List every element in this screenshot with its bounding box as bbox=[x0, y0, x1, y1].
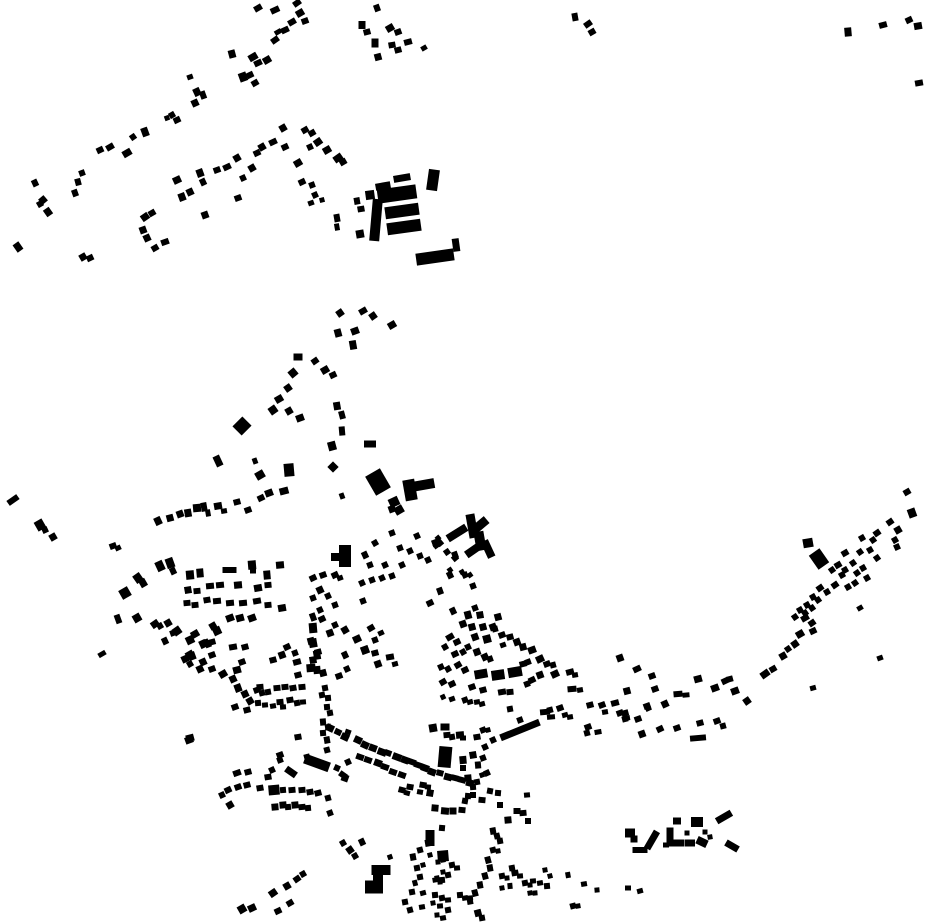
building-footprint bbox=[537, 880, 544, 886]
building-footprint bbox=[247, 163, 257, 173]
building-footprint bbox=[467, 895, 473, 901]
building-footprint bbox=[432, 877, 438, 883]
building-footprint bbox=[233, 498, 241, 506]
building-footprint bbox=[464, 774, 472, 782]
building-footprint bbox=[273, 685, 280, 692]
building-footprint bbox=[527, 890, 533, 896]
building-footprint bbox=[448, 680, 457, 688]
building-footprint bbox=[285, 899, 294, 908]
building-footprint bbox=[435, 859, 440, 864]
building-footprint bbox=[388, 572, 396, 580]
building-footprint bbox=[323, 736, 330, 744]
building-footprint bbox=[255, 700, 262, 707]
building-footprint bbox=[856, 604, 864, 611]
building-footprint bbox=[556, 704, 565, 712]
building-footprint bbox=[481, 872, 489, 880]
building-footprint bbox=[268, 785, 280, 796]
building-footprint bbox=[853, 569, 861, 577]
building-footprint bbox=[252, 457, 259, 464]
building-footprint bbox=[166, 514, 175, 523]
building-footprint bbox=[476, 611, 484, 619]
building-footprint bbox=[359, 597, 367, 605]
building-footprint bbox=[265, 689, 272, 696]
building-footprint bbox=[394, 28, 403, 36]
building-footprint bbox=[232, 153, 242, 163]
building-footprint bbox=[413, 532, 421, 540]
building-footprint bbox=[915, 79, 924, 86]
building-footprint bbox=[417, 874, 424, 881]
building-footprint bbox=[482, 634, 492, 644]
building-footprint bbox=[333, 214, 340, 223]
building-footprint bbox=[547, 873, 553, 879]
building-footprint bbox=[339, 839, 347, 847]
building-footprint bbox=[344, 758, 352, 766]
building-footprint bbox=[320, 365, 330, 375]
building-footprint bbox=[213, 166, 222, 174]
building-footprint bbox=[631, 836, 638, 843]
building-footprint bbox=[468, 683, 477, 691]
building-footprint bbox=[673, 691, 682, 698]
building-footprint bbox=[315, 585, 324, 594]
building-footprint bbox=[309, 574, 318, 582]
building-footprint bbox=[610, 699, 619, 707]
building-footprint bbox=[685, 831, 690, 836]
building-footprint bbox=[388, 768, 398, 776]
building-footprint bbox=[426, 789, 434, 797]
building-footprint bbox=[256, 784, 264, 791]
building-footprint bbox=[186, 74, 193, 81]
building-footprint bbox=[371, 539, 379, 547]
building-footprint bbox=[186, 570, 195, 580]
map-canvas bbox=[0, 0, 930, 924]
building-footprint bbox=[402, 899, 409, 906]
building-footprint bbox=[386, 653, 395, 660]
building-footprint bbox=[495, 848, 501, 854]
building-footprint bbox=[307, 200, 314, 207]
building-footprint bbox=[409, 889, 416, 896]
building-footprint bbox=[278, 123, 288, 133]
building-footprint bbox=[314, 789, 322, 797]
building-footprint bbox=[475, 761, 482, 768]
building-footprint bbox=[440, 915, 447, 921]
building-footprint bbox=[206, 583, 214, 590]
building-footprint bbox=[469, 582, 477, 590]
building-footprint bbox=[253, 584, 262, 592]
building-footprint bbox=[256, 684, 263, 691]
building-footprint bbox=[464, 610, 473, 620]
building-footprint bbox=[623, 687, 632, 696]
building-footprint bbox=[283, 643, 292, 651]
building-footprint bbox=[567, 714, 574, 720]
building-footprint bbox=[358, 838, 366, 847]
building-footprint bbox=[276, 699, 283, 706]
building-footprint bbox=[636, 888, 643, 894]
building-footprint bbox=[648, 672, 657, 680]
building-footprint bbox=[114, 614, 123, 625]
building-footprint bbox=[851, 579, 859, 587]
building-footprint bbox=[274, 907, 283, 915]
building-footprint bbox=[276, 561, 285, 569]
building-footprint bbox=[430, 900, 436, 906]
building-footprint bbox=[222, 163, 232, 172]
building-footprint bbox=[856, 548, 864, 556]
building-footprint bbox=[323, 746, 330, 753]
building-footprint bbox=[371, 649, 379, 657]
building-footprint bbox=[437, 903, 443, 909]
building-footprint bbox=[365, 190, 375, 200]
building-footprint bbox=[177, 192, 186, 202]
building-footprint bbox=[417, 789, 424, 795]
building-footprint bbox=[474, 668, 488, 679]
building-footprint bbox=[359, 21, 366, 29]
building-footprint bbox=[484, 856, 492, 864]
building-footprint bbox=[468, 623, 477, 632]
building-footprint bbox=[398, 561, 406, 569]
building-footprint bbox=[244, 768, 252, 776]
building-footprint bbox=[268, 138, 278, 147]
building-footprint bbox=[300, 699, 306, 705]
building-footprint bbox=[237, 904, 248, 915]
building-footprint bbox=[586, 701, 594, 709]
building-footprint bbox=[121, 148, 132, 159]
building-footprint bbox=[660, 699, 669, 708]
building-footprint bbox=[373, 4, 381, 13]
building-footprint bbox=[253, 3, 263, 12]
building-footprint bbox=[397, 771, 407, 779]
building-footprint bbox=[403, 790, 410, 796]
building-footprint bbox=[459, 756, 467, 765]
building-footprint bbox=[830, 581, 839, 590]
building-footprint bbox=[696, 719, 704, 727]
building-footprint bbox=[338, 410, 346, 419]
building-footprint bbox=[238, 658, 247, 666]
building-footprint bbox=[78, 169, 86, 177]
building-footprint bbox=[320, 730, 327, 737]
building-footprint bbox=[243, 781, 251, 789]
building-footprint bbox=[473, 648, 482, 657]
building-footprint bbox=[426, 599, 435, 607]
building-footprint bbox=[270, 703, 277, 709]
building-footprint bbox=[504, 816, 512, 824]
building-footprint bbox=[366, 561, 374, 569]
building-footprint bbox=[441, 643, 449, 651]
building-footprint bbox=[274, 394, 284, 404]
building-footprint bbox=[264, 582, 271, 589]
building-footprint bbox=[436, 587, 444, 596]
building-footprint bbox=[118, 586, 132, 600]
building-footprint bbox=[286, 696, 294, 703]
building-footprint bbox=[96, 146, 105, 154]
building-footprint bbox=[280, 26, 290, 35]
building-footprint bbox=[163, 618, 173, 628]
building-footprint bbox=[807, 619, 816, 628]
building-footprint bbox=[248, 560, 257, 570]
building-footprint bbox=[581, 881, 588, 887]
building-footprint bbox=[309, 623, 318, 634]
building-footprint bbox=[905, 16, 914, 24]
building-footprint bbox=[802, 538, 813, 549]
building-footprint bbox=[469, 751, 477, 759]
building-footprint bbox=[459, 620, 468, 629]
building-footprint bbox=[281, 684, 288, 691]
building-footprint bbox=[497, 838, 504, 845]
building-footprint bbox=[445, 897, 451, 903]
building-footprint bbox=[844, 27, 852, 37]
building-footprint bbox=[358, 579, 366, 587]
building-footprint bbox=[633, 847, 648, 853]
building-footprint bbox=[316, 606, 324, 614]
building-footprint bbox=[663, 843, 669, 848]
building-footprint bbox=[365, 468, 391, 496]
building-footprint bbox=[791, 613, 799, 621]
building-footprint bbox=[283, 383, 293, 393]
building-footprint bbox=[384, 203, 419, 220]
building-footprint bbox=[303, 754, 331, 772]
building-footprint bbox=[294, 671, 302, 679]
building-footprint bbox=[318, 615, 327, 623]
building-footprint bbox=[319, 571, 328, 579]
building-footprint bbox=[844, 583, 852, 591]
building-footprint bbox=[499, 642, 506, 649]
building-footprint bbox=[381, 561, 389, 569]
building-footprint bbox=[234, 194, 243, 202]
building-footprint bbox=[602, 709, 609, 715]
building-footprint bbox=[386, 219, 421, 236]
building-footprint bbox=[527, 645, 537, 654]
building-footprint bbox=[571, 13, 578, 22]
building-footprint bbox=[142, 233, 151, 242]
building-footprint bbox=[364, 441, 376, 448]
building-footprint bbox=[685, 840, 695, 847]
building-footprint bbox=[278, 651, 287, 660]
building-footprint bbox=[446, 571, 454, 580]
building-footprint bbox=[339, 426, 346, 435]
building-footprint bbox=[406, 547, 414, 555]
building-footprint bbox=[195, 168, 204, 178]
building-footprint bbox=[277, 604, 286, 612]
building-footprint bbox=[190, 98, 199, 107]
building-footprint bbox=[345, 845, 355, 855]
building-footprint bbox=[327, 441, 337, 452]
building-footprint bbox=[363, 28, 371, 36]
building-footprint bbox=[283, 463, 294, 477]
building-footprint bbox=[849, 559, 857, 567]
building-footprint bbox=[859, 564, 867, 572]
building-footprint bbox=[437, 879, 442, 884]
building-footprint bbox=[387, 854, 393, 860]
building-footprint bbox=[284, 766, 298, 779]
building-footprint bbox=[234, 581, 243, 589]
building-footprint bbox=[326, 629, 335, 638]
building-footprint bbox=[97, 650, 106, 658]
building-footprint bbox=[292, 875, 301, 884]
building-footprint bbox=[228, 49, 237, 59]
building-footprint bbox=[784, 645, 792, 653]
building-footprint bbox=[420, 862, 426, 868]
building-footprint bbox=[724, 839, 740, 852]
building-footprint bbox=[458, 807, 465, 814]
building-footprint bbox=[199, 178, 207, 187]
building-footprint bbox=[420, 44, 428, 51]
building-footprint bbox=[322, 685, 329, 692]
building-footprint bbox=[262, 702, 268, 708]
building-footprint bbox=[233, 683, 242, 693]
building-footprint bbox=[279, 486, 290, 495]
building-footprint bbox=[519, 810, 526, 817]
building-footprint bbox=[13, 241, 24, 252]
building-footprint bbox=[313, 137, 324, 147]
building-footprint bbox=[707, 834, 713, 840]
building-footprint bbox=[525, 818, 531, 824]
building-footprint bbox=[269, 656, 277, 664]
building-footprint bbox=[795, 629, 805, 639]
building-footprint bbox=[438, 678, 447, 687]
building-footprint bbox=[324, 794, 331, 801]
building-footprint bbox=[264, 773, 272, 780]
building-footprint bbox=[129, 133, 137, 141]
building-footprint bbox=[409, 853, 416, 861]
building-footprint bbox=[360, 645, 370, 655]
building-footprint bbox=[439, 895, 446, 902]
building-footprint bbox=[644, 830, 660, 851]
building-footprint bbox=[473, 733, 481, 740]
building-footprint bbox=[471, 633, 480, 642]
building-footprint bbox=[567, 686, 576, 693]
building-footprint bbox=[445, 632, 455, 641]
building-footprint bbox=[391, 661, 398, 667]
building-footprint bbox=[419, 890, 426, 896]
building-footprint bbox=[235, 614, 245, 623]
building-footprint bbox=[105, 142, 115, 151]
building-footprint bbox=[287, 367, 298, 378]
building-footprint bbox=[440, 857, 446, 863]
building-footprint bbox=[486, 864, 493, 872]
building-footprint bbox=[656, 725, 665, 733]
building-footprint bbox=[361, 551, 369, 560]
building-footprint bbox=[43, 207, 53, 218]
building-footprint bbox=[264, 602, 271, 609]
building-footprint bbox=[412, 879, 418, 886]
building-footprint bbox=[184, 586, 192, 594]
building-footprint bbox=[232, 769, 242, 777]
building-footprint bbox=[161, 637, 169, 646]
building-footprint bbox=[577, 687, 584, 693]
building-footprint bbox=[544, 883, 551, 890]
building-footprint bbox=[288, 787, 295, 794]
building-footprint bbox=[487, 788, 494, 795]
building-footprint bbox=[193, 504, 202, 513]
building-footprint bbox=[828, 566, 836, 574]
building-footprint bbox=[902, 488, 911, 497]
building-footprint bbox=[340, 625, 350, 635]
building-footprint bbox=[208, 665, 217, 673]
building-footprint bbox=[431, 804, 439, 812]
building-footprint bbox=[673, 818, 681, 825]
building-footprint bbox=[530, 878, 536, 884]
building-footprint bbox=[335, 672, 344, 680]
building-footprint bbox=[270, 5, 281, 14]
building-footprint bbox=[443, 548, 451, 556]
building-footprint bbox=[479, 915, 486, 922]
building-footprint bbox=[516, 716, 524, 724]
building-footprint bbox=[334, 328, 343, 338]
building-footprint bbox=[324, 704, 331, 711]
building-footprint bbox=[324, 592, 332, 600]
building-footprint bbox=[371, 636, 379, 644]
building-footprint bbox=[710, 683, 720, 692]
building-footprint bbox=[913, 22, 922, 30]
building-footprint bbox=[226, 600, 234, 607]
building-footprint bbox=[840, 549, 849, 558]
building-footprint bbox=[809, 627, 818, 635]
building-footprint bbox=[299, 870, 307, 878]
building-footprint bbox=[809, 548, 829, 569]
building-footprint bbox=[195, 664, 204, 673]
building-footprint bbox=[270, 35, 280, 45]
building-footprint bbox=[245, 696, 255, 706]
building-footprint bbox=[449, 734, 456, 741]
building-footprint bbox=[690, 734, 706, 741]
building-footprint bbox=[262, 55, 272, 65]
building-footprint bbox=[232, 416, 251, 435]
building-footprint bbox=[294, 733, 302, 740]
building-footprint bbox=[295, 8, 305, 18]
building-footprint bbox=[450, 808, 457, 815]
building-footprint bbox=[325, 695, 332, 702]
building-footprint bbox=[858, 534, 866, 542]
building-footprint bbox=[257, 494, 266, 502]
building-footprint bbox=[891, 536, 899, 544]
building-footprint bbox=[293, 158, 303, 168]
building-footprint bbox=[183, 600, 190, 607]
building-footprint bbox=[439, 825, 446, 832]
building-footprint bbox=[594, 729, 602, 735]
building-footprint bbox=[565, 872, 571, 879]
building-footprint bbox=[693, 675, 703, 684]
building-footprint bbox=[339, 492, 346, 499]
building-footprint bbox=[403, 38, 412, 46]
building-footprint bbox=[377, 629, 385, 636]
building-footprint bbox=[357, 205, 365, 212]
building-footprint bbox=[419, 904, 426, 910]
building-footprint bbox=[598, 701, 607, 709]
building-footprint bbox=[225, 613, 235, 622]
building-footprint bbox=[247, 613, 257, 622]
building-footprint bbox=[298, 787, 305, 794]
building-footprint bbox=[218, 669, 228, 679]
building-footprint bbox=[809, 685, 816, 691]
building-footprint bbox=[451, 650, 460, 658]
building-footprint bbox=[292, 0, 302, 8]
building-footprint bbox=[479, 754, 487, 762]
building-footprint bbox=[247, 903, 257, 913]
building-footprint bbox=[703, 830, 708, 835]
building-footprint bbox=[298, 684, 305, 691]
building-footprint bbox=[185, 187, 194, 196]
building-footprint bbox=[48, 532, 58, 542]
building-footprint bbox=[184, 508, 192, 517]
building-footprint bbox=[509, 865, 516, 872]
building-footprint bbox=[322, 145, 332, 155]
building-footprint bbox=[306, 664, 316, 673]
building-footprint bbox=[294, 354, 303, 361]
building-footprint bbox=[893, 543, 901, 551]
building-footprint bbox=[331, 601, 339, 609]
building-footprint bbox=[160, 238, 170, 246]
building-footprint bbox=[301, 17, 310, 25]
building-footprint bbox=[497, 802, 503, 808]
building-footprint bbox=[441, 724, 450, 731]
